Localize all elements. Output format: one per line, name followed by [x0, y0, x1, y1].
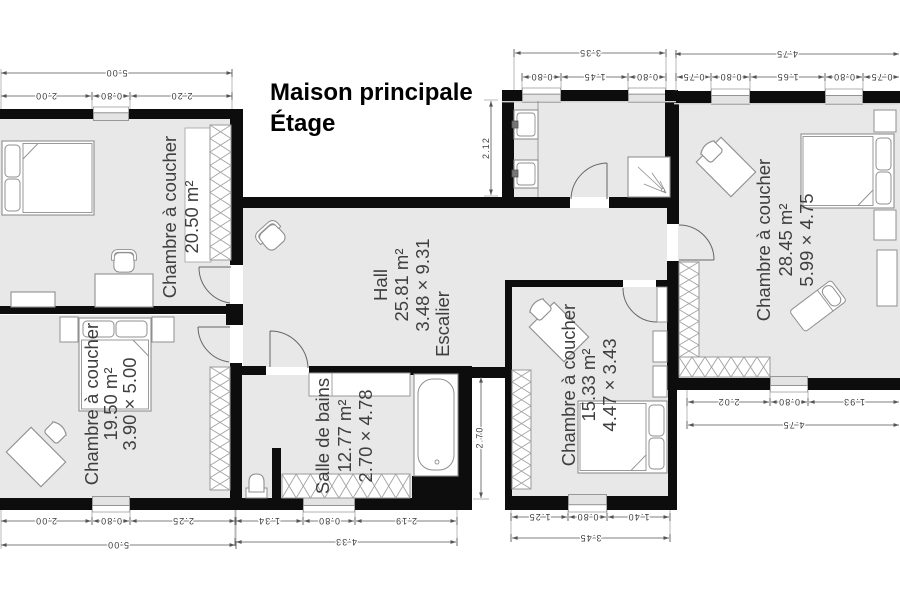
svg-text:0.75: 0.75: [683, 72, 705, 82]
svg-text:1.65: 1.65: [777, 72, 799, 82]
svg-text:1.45: 1.45: [584, 72, 606, 82]
svg-text:0.80: 0.80: [531, 72, 553, 82]
svg-text:2.12: 2.12: [481, 137, 491, 159]
svg-text:0.80: 0.80: [720, 72, 742, 82]
svg-text:3.90 × 5.00: 3.90 × 5.00: [119, 357, 140, 450]
svg-text:0.80: 0.80: [100, 516, 122, 526]
svg-text:0.80: 0.80: [636, 72, 658, 82]
svg-text:2.02: 2.02: [718, 397, 740, 407]
svg-text:2.00: 2.00: [35, 91, 57, 101]
svg-text:0.80: 0.80: [100, 91, 122, 101]
svg-text:19.50 m²: 19.50 m²: [100, 367, 121, 440]
svg-text:2.19: 2.19: [395, 516, 417, 526]
svg-text:Étage: Étage: [270, 109, 335, 137]
svg-text:4.33: 4.33: [335, 537, 357, 547]
svg-text:1.40: 1.40: [628, 512, 650, 522]
svg-text:0.80: 0.80: [833, 72, 855, 82]
svg-text:2.70: 2.70: [475, 427, 485, 449]
svg-text:2.20: 2.20: [171, 91, 193, 101]
svg-text:2.25: 2.25: [172, 516, 194, 526]
svg-text:Salle de bains: Salle de bains: [312, 378, 333, 494]
svg-text:5.00: 5.00: [106, 68, 128, 78]
svg-text:4.47 × 3.43: 4.47 × 3.43: [599, 338, 620, 431]
svg-text:1.25: 1.25: [529, 512, 551, 522]
svg-text:0.80: 0.80: [318, 516, 340, 526]
svg-text:28.45 m²: 28.45 m²: [775, 203, 796, 276]
svg-text:0.80: 0.80: [577, 512, 599, 522]
svg-text:2.00: 2.00: [35, 516, 57, 526]
svg-text:3.48 × 9.31: 3.48 × 9.31: [412, 238, 433, 331]
svg-text:Hall: Hall: [370, 269, 391, 301]
svg-text:Chambre à coucher: Chambre à coucher: [81, 323, 102, 485]
svg-text:0.75: 0.75: [871, 72, 893, 82]
svg-text:20.50 m²: 20.50 m²: [181, 180, 202, 253]
svg-text:Chambre à coucher: Chambre à coucher: [558, 304, 579, 466]
svg-text:5.99 × 4.75: 5.99 × 4.75: [796, 193, 817, 286]
svg-text:3.45: 3.45: [580, 533, 602, 543]
svg-text:Chambre à coucher: Chambre à coucher: [753, 159, 774, 321]
svg-text:12.77 m²: 12.77 m²: [334, 399, 355, 472]
svg-text:1.34: 1.34: [258, 516, 280, 526]
svg-text:5.00: 5.00: [107, 540, 129, 550]
svg-text:3.35: 3.35: [579, 48, 601, 58]
svg-text:Chambre à coucher: Chambre à coucher: [159, 136, 180, 298]
svg-text:4.75: 4.75: [776, 49, 798, 59]
svg-text:0.80: 0.80: [778, 397, 800, 407]
svg-text:Escalier: Escalier: [432, 291, 453, 357]
svg-text:25.81 m²: 25.81 m²: [391, 248, 412, 321]
svg-text:4.75: 4.75: [783, 420, 805, 430]
svg-text:15.33 m²: 15.33 m²: [578, 348, 599, 421]
svg-text:2.70 × 4.78: 2.70 × 4.78: [355, 389, 376, 482]
svg-text:Maison principale: Maison principale: [270, 79, 473, 106]
svg-text:1.93: 1.93: [843, 397, 865, 407]
